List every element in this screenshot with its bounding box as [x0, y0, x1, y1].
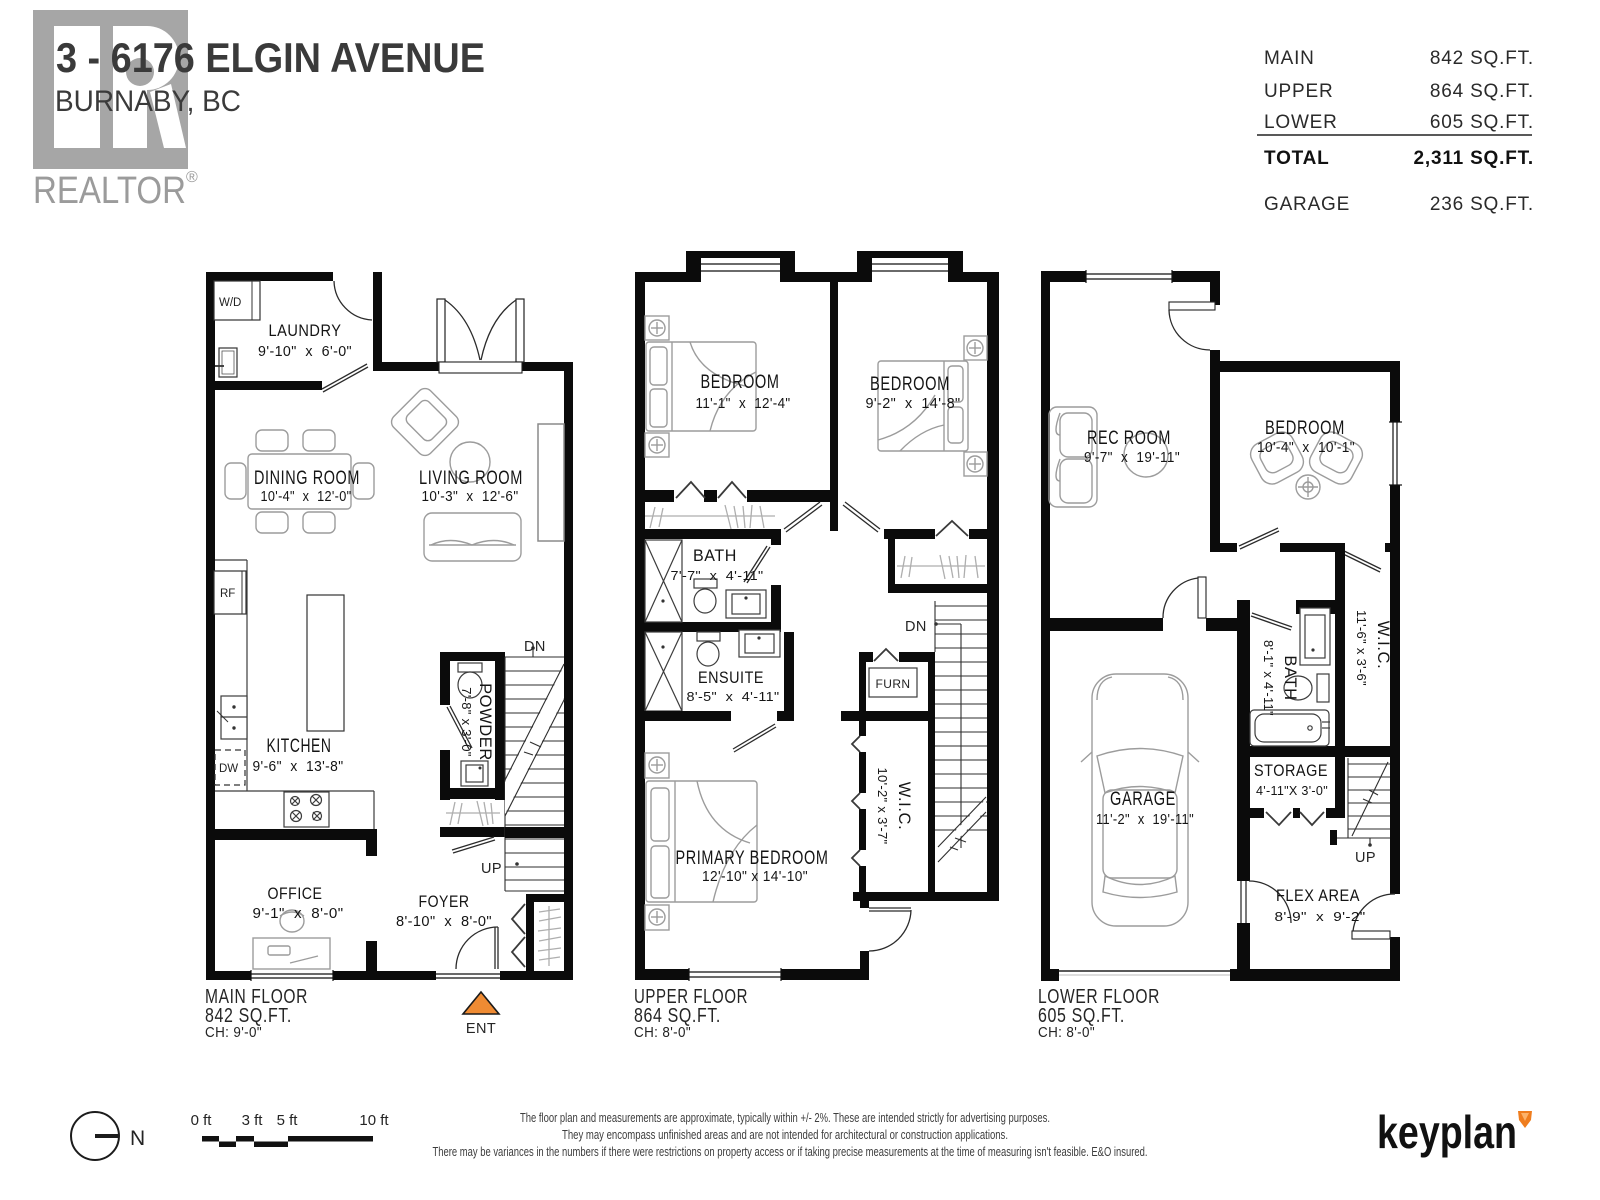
- svg-text:11'-2" x 19'-11": 11'-2" x 19'-11": [1096, 812, 1194, 828]
- svg-text:FLEX AREA: FLEX AREA: [1276, 887, 1360, 905]
- svg-text:GARAGE: GARAGE: [1264, 194, 1350, 215]
- svg-text:605 SQ.FT.: 605 SQ.FT.: [1430, 112, 1534, 133]
- svg-text:864 SQ.FT.: 864 SQ.FT.: [634, 1004, 721, 1027]
- svg-text:W/D: W/D: [219, 297, 241, 309]
- svg-text:9'-1" x 8'-0": 9'-1" x 8'-0": [253, 906, 344, 922]
- svg-text:®: ®: [186, 169, 198, 186]
- svg-text:STORAGE: STORAGE: [1254, 762, 1328, 780]
- svg-text:842 SQ.FT.: 842 SQ.FT.: [1430, 48, 1534, 69]
- svg-text:BURNABY, BC: BURNABY, BC: [55, 85, 241, 118]
- svg-text:10 ft: 10 ft: [359, 1112, 389, 1129]
- svg-text:CH: 9'-0": CH: 9'-0": [205, 1025, 262, 1041]
- svg-text:LOWER: LOWER: [1264, 112, 1338, 133]
- svg-text:11'-1" x 12'-4": 11'-1" x 12'-4": [696, 396, 791, 412]
- svg-text:236 SQ.FT.: 236 SQ.FT.: [1430, 194, 1534, 215]
- svg-text:0 ft: 0 ft: [191, 1112, 213, 1129]
- svg-text:10'-3" x 12'-6": 10'-3" x 12'-6": [422, 489, 519, 505]
- svg-text:CH: 8'-0": CH: 8'-0": [634, 1025, 691, 1041]
- svg-text:8'-5" x 4'-11": 8'-5" x 4'-11": [687, 689, 780, 704]
- svg-text:ENT: ENT: [466, 1021, 496, 1037]
- svg-text:W.I.C.: W.I.C.: [1374, 621, 1392, 670]
- svg-text:RF: RF: [220, 588, 235, 600]
- svg-text:7'-7" x 4'-11": 7'-7" x 4'-11": [671, 568, 764, 583]
- svg-text:BEDROOM: BEDROOM: [1265, 418, 1345, 439]
- svg-text:CH: 8'-0": CH: 8'-0": [1038, 1025, 1095, 1041]
- svg-text:9'-7" x 19'-11": 9'-7" x 19'-11": [1084, 450, 1180, 466]
- svg-text:864 SQ.FT.: 864 SQ.FT.: [1430, 81, 1534, 102]
- svg-text:There may be variances in the: There may be variances in the numbers if…: [433, 1145, 1148, 1159]
- svg-text:TOTAL: TOTAL: [1264, 148, 1330, 169]
- svg-text:MAIN: MAIN: [1264, 48, 1315, 69]
- svg-text:REALTOR: REALTOR: [33, 170, 186, 212]
- svg-text:9'-2" x 14'-8": 9'-2" x 14'-8": [866, 396, 961, 412]
- svg-text:DINING ROOM: DINING ROOM: [254, 468, 360, 489]
- svg-text:keyplan: keyplan: [1377, 1106, 1517, 1158]
- svg-text:UPPER: UPPER: [1264, 81, 1333, 102]
- svg-text:POWDER: POWDER: [476, 683, 494, 761]
- svg-text:KITCHEN: KITCHEN: [267, 736, 332, 757]
- svg-text:12'-10" x 14'-10": 12'-10" x 14'-10": [702, 869, 808, 885]
- svg-text:ENSUITE: ENSUITE: [698, 669, 764, 687]
- svg-text:2,311 SQ.FT.: 2,311 SQ.FT.: [1414, 148, 1535, 169]
- svg-text:FOYER: FOYER: [419, 893, 470, 911]
- svg-text:3 - 6176 ELGIN AVENUE: 3 - 6176 ELGIN AVENUE: [56, 34, 485, 81]
- svg-text:The floor plan and measurement: The floor plan and measurements are appr…: [520, 1111, 1050, 1125]
- svg-text:8'-9" x 9'-2": 8'-9" x 9'-2": [1275, 909, 1366, 924]
- svg-text:5 ft: 5 ft: [277, 1112, 299, 1129]
- svg-text:8'-1" x 4'-11": 8'-1" x 4'-11": [1261, 640, 1276, 716]
- svg-text:10'-2" x 3'-7": 10'-2" x 3'-7": [875, 768, 890, 845]
- svg-text:BATH: BATH: [1281, 655, 1299, 700]
- svg-text:DN: DN: [524, 639, 546, 655]
- svg-text:3 ft: 3 ft: [242, 1112, 264, 1129]
- svg-text:7'-8" x 3'-0": 7'-8" x 3'-0": [459, 687, 474, 756]
- svg-text:9'-10" x 6'-0": 9'-10" x 6'-0": [258, 344, 352, 360]
- svg-text:10'-4" x 10'-1": 10'-4" x 10'-1": [1257, 440, 1355, 456]
- svg-text:They may encompass unfinished: They may encompass unfinished areas and …: [562, 1128, 1008, 1142]
- svg-text:W.I.C.: W.I.C.: [895, 782, 913, 831]
- svg-text:PRIMARY BEDROOM: PRIMARY BEDROOM: [676, 848, 829, 869]
- svg-text:FURN: FURN: [876, 677, 911, 691]
- svg-text:LAUNDRY: LAUNDRY: [269, 322, 342, 340]
- svg-text:UP: UP: [481, 861, 502, 877]
- svg-text:LIVING ROOM: LIVING ROOM: [419, 468, 523, 489]
- svg-text:11'-6" x 3'-6": 11'-6" x 3'-6": [1354, 610, 1369, 686]
- svg-text:4'-11"X 3'-0": 4'-11"X 3'-0": [1256, 783, 1328, 798]
- svg-text:605 SQ.FT.: 605 SQ.FT.: [1038, 1004, 1125, 1027]
- svg-text:8'-10" x 8'-0": 8'-10" x 8'-0": [396, 914, 492, 930]
- svg-text:GARAGE: GARAGE: [1110, 789, 1176, 810]
- svg-text:842 SQ.FT.: 842 SQ.FT.: [205, 1004, 292, 1027]
- svg-text:OFFICE: OFFICE: [268, 885, 323, 903]
- svg-text:N: N: [130, 1127, 145, 1150]
- svg-text:DN: DN: [905, 619, 927, 635]
- svg-text:UP: UP: [1355, 850, 1376, 866]
- svg-text:BEDROOM: BEDROOM: [870, 374, 950, 395]
- svg-text:BATH: BATH: [693, 547, 737, 565]
- svg-text:9'-6" x 13'-8": 9'-6" x 13'-8": [253, 759, 344, 775]
- svg-text:BEDROOM: BEDROOM: [701, 372, 780, 393]
- svg-text:10'-4" x 12'-0": 10'-4" x 12'-0": [261, 489, 352, 505]
- svg-text:REC ROOM: REC ROOM: [1087, 428, 1171, 449]
- svg-text:DW: DW: [219, 763, 238, 775]
